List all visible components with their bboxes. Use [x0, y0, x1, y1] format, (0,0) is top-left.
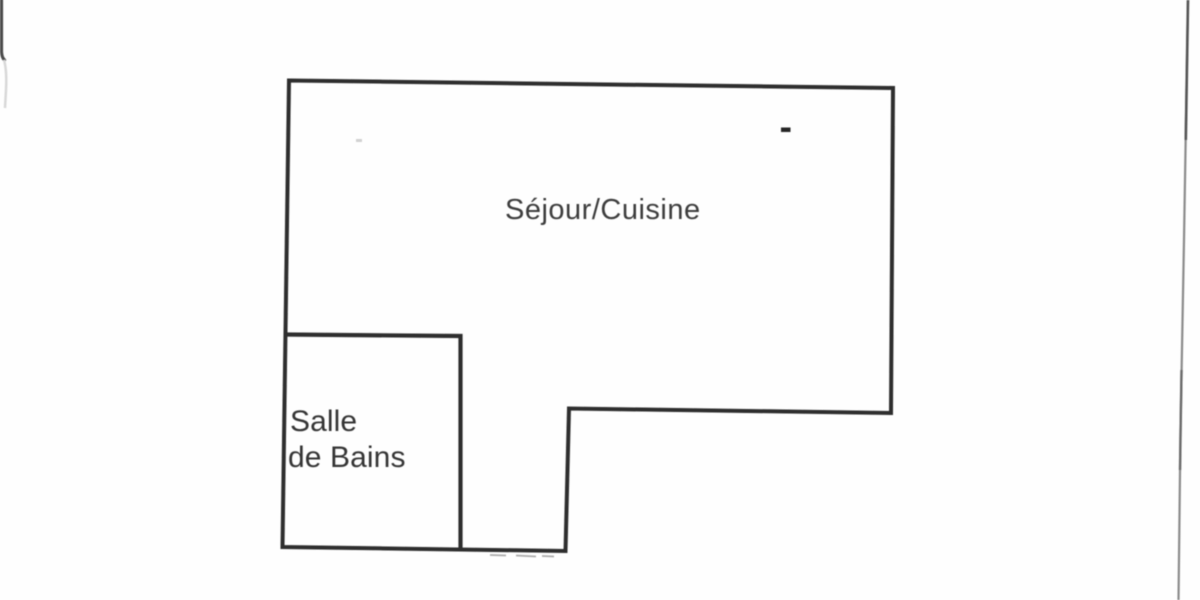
- svg-text:Séjour/Cuisine: Séjour/Cuisine: [505, 194, 701, 226]
- svg-text:de Bains: de Bains: [288, 441, 406, 474]
- svg-text:Salle: Salle: [290, 405, 357, 438]
